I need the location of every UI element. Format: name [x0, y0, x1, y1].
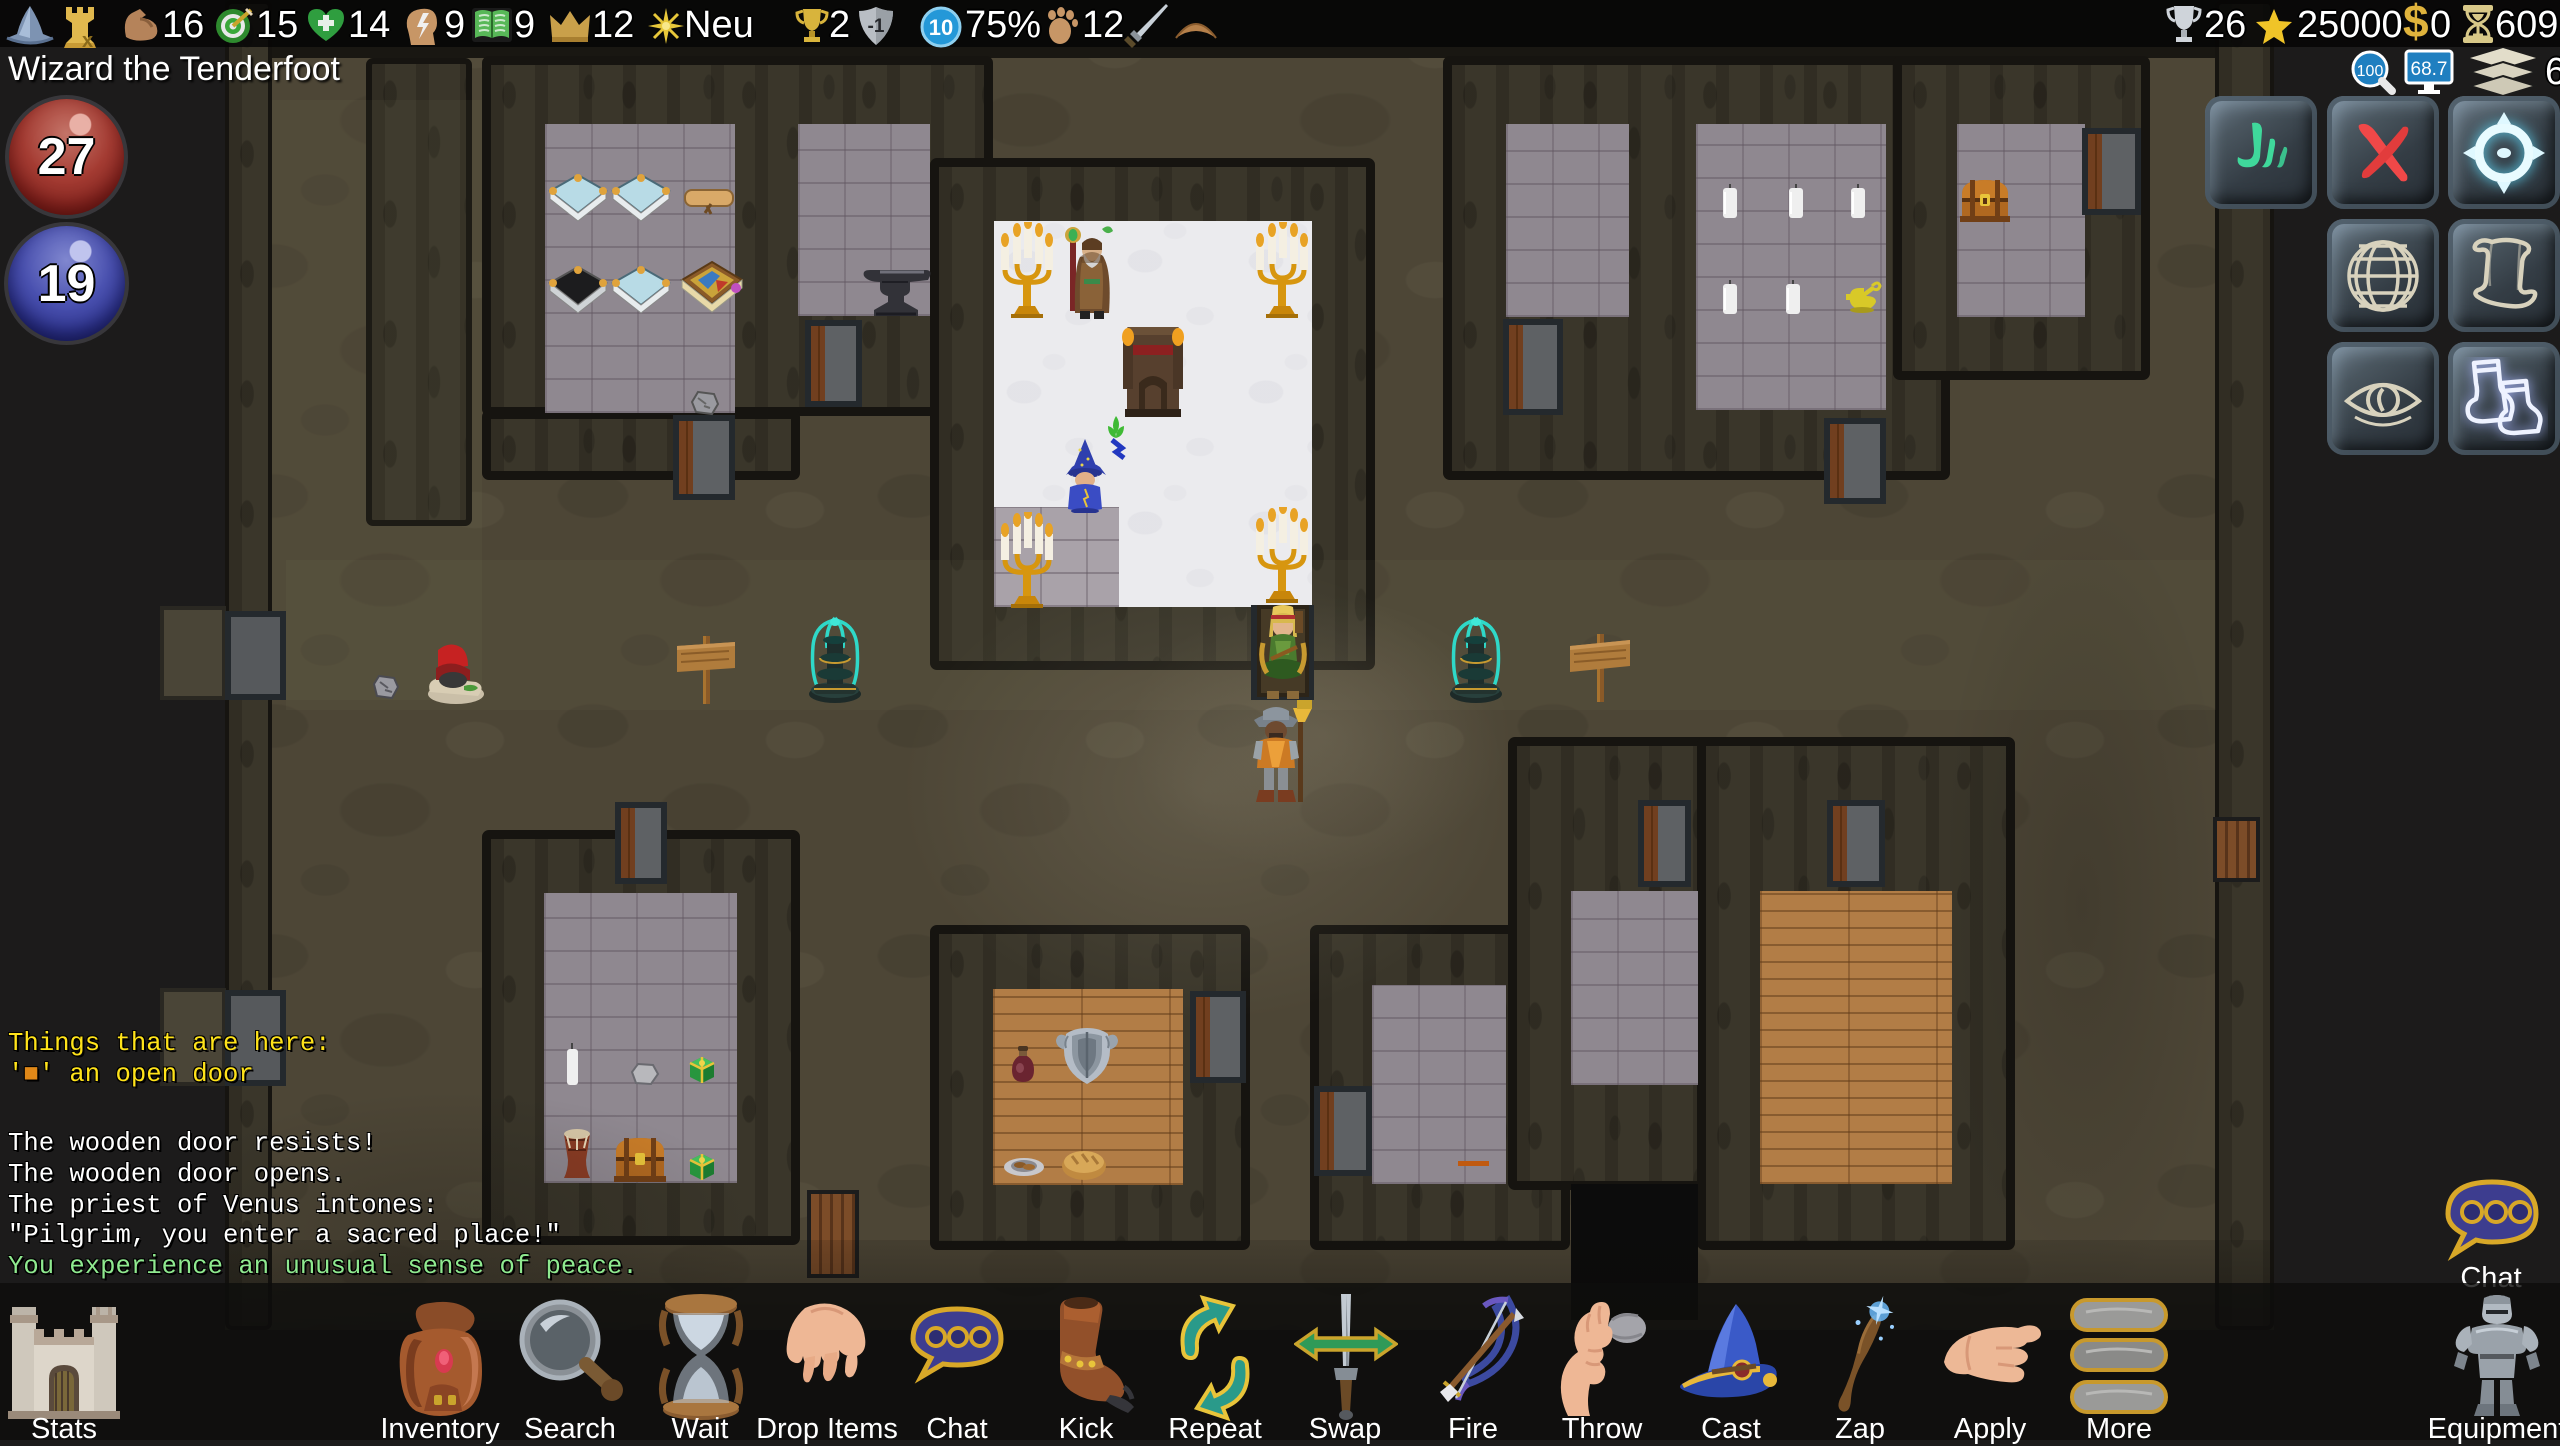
svg-text:x: x [82, 30, 93, 49]
svg-text:10: 10 [929, 15, 953, 40]
svg-text:-1: -1 [868, 16, 885, 37]
svg-text:68.7: 68.7 [2411, 59, 2448, 80]
svg-text:100: 100 [2357, 63, 2384, 80]
